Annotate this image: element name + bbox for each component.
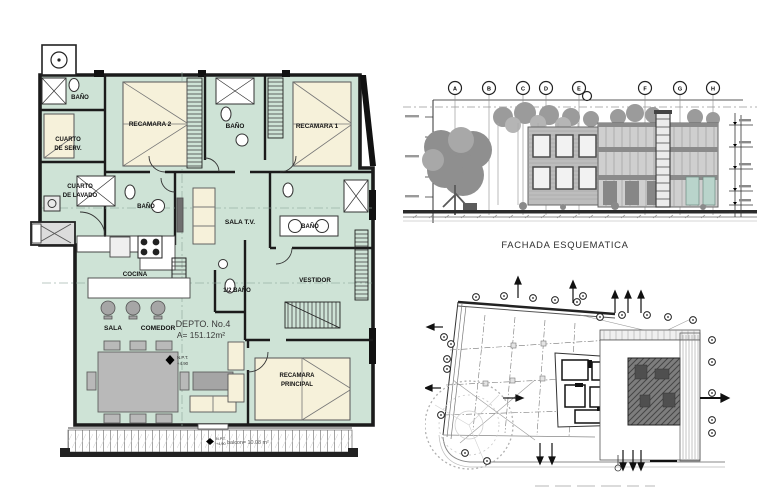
grid-bubble-c: C [521,87,525,93]
label-cocina: COCINA [123,271,148,278]
label-recamara-ppal-1: RECAMARA [280,373,316,379]
grid-bubble-b: B [487,87,491,93]
label-vestidor: VESTIDOR [299,277,331,284]
label-bano-servicio: BAÑO [71,94,89,101]
dining-set [87,341,189,423]
label-cuarto-serv-1: CUARTO [55,137,81,143]
grid-bubble-e: E [577,87,581,93]
mechanical-box [42,45,76,75]
balcony-npt-label: N.P.T. [216,437,226,441]
label-bano-mid: BAÑO [137,203,155,210]
label-bano-right: BAÑO [301,223,319,230]
npt-label: N.P.T. [177,355,188,360]
tree-site [425,381,513,469]
building-right [598,110,718,207]
elevator-shaft [31,222,75,245]
facade-elevation: A B C D E F G H [403,55,757,260]
label-sala: SALA [104,325,122,332]
site-plan [425,265,757,489]
unit-number: DEPTO. No.4 [176,319,231,329]
label-lavado-1: CUARTO [67,184,93,190]
facade-caption: FACHADA ESQUEMATICA [501,239,628,250]
label-sala-tv: SALA T.V. [225,219,255,226]
npt-level: +4.90 [177,361,189,366]
site-building-right [600,330,700,461]
level-markers [729,113,753,217]
label-medio-bano: 1/2 BAÑO [223,287,251,294]
balcony-npt-level: +4.90 [216,442,226,446]
grid-bubble-g: G [678,87,682,93]
grid-bubble-d: D [544,87,548,93]
architectural-sheet: N.P.T. +4.90 balcon= 10.08 m² N.P.T. +4.… [0,0,757,489]
unit-area: A= 151.12m² [177,330,225,340]
label-comedor: COMEDOR [141,325,176,332]
balcony-area-label: balcon= 10.08 m² [227,440,269,446]
label-lavado-2: DE LAVADO [63,193,98,199]
label-cuarto-serv-2: DE SERV. [54,146,82,152]
balcony: N.P.T. +4.90 balcon= 10.08 m² [60,424,358,457]
label-recamara2: RECAMARA 2 [129,121,172,128]
label-bano-top: BAÑO [226,121,245,130]
label-recamara-ppal-2: PRINCIPAL [281,382,313,388]
grid-bubble-a: A [453,87,457,93]
floor-plan: N.P.T. +4.90 balcon= 10.08 m² N.P.T. +4.… [30,40,380,465]
building-center [528,127,598,205]
label-recamara1: RECAMARA 1 [296,123,339,130]
grid-bubble-h: H [711,87,715,93]
